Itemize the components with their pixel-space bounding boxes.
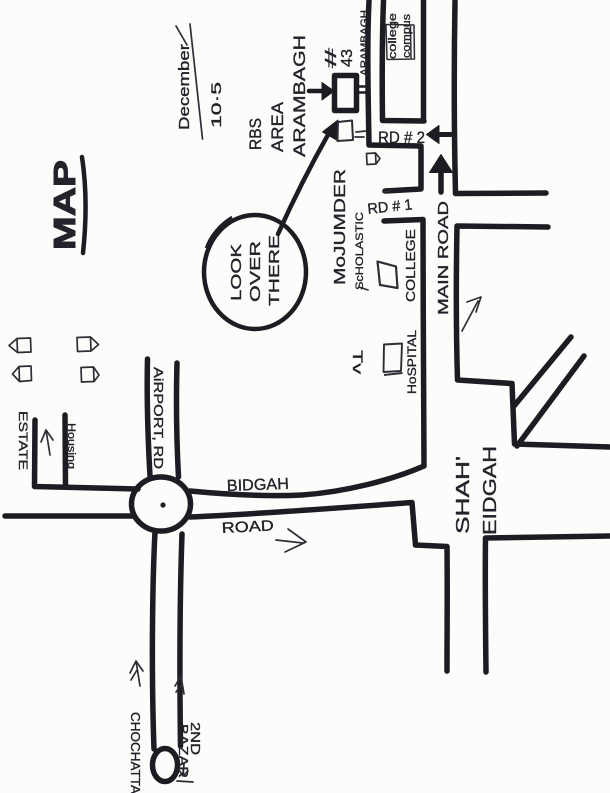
svg-text:Housing: Housing: [65, 423, 77, 469]
svg-text:ScHOLASTIC: ScHOLASTIC: [354, 212, 366, 290]
svg-text:ARAMBAGH: ARAMBAGH: [290, 35, 309, 157]
svg-text:RD # 2: RD # 2: [378, 128, 425, 147]
svg-text:HoSPITAL: HoSPITAL: [405, 330, 419, 394]
svg-text:RBS: RBS: [246, 118, 265, 150]
svg-text:AREA: AREA: [268, 101, 287, 152]
svg-text:LOOK: LOOK: [228, 244, 245, 301]
svg-text:MoJUMDER: MoJUMDER: [332, 169, 349, 285]
svg-text:BIDGAH: BIDGAH: [227, 476, 290, 495]
svg-text:ROAD: ROAD: [221, 517, 274, 537]
svg-text:RD # 1: RD # 1: [367, 196, 414, 218]
svg-text:compus: compus: [401, 13, 413, 58]
svg-text:MAIN ROAD: MAIN ROAD: [435, 201, 452, 315]
svg-text:#: #: [323, 48, 340, 68]
svg-text:COLLEGE: COLLEGE: [403, 229, 418, 302]
svg-text:BAZAR: BAZAR: [176, 724, 191, 778]
svg-text:December: December: [176, 44, 193, 130]
svg-text:OVER: OVER: [247, 241, 264, 302]
svg-text:EIDGAH: EIDGAH: [480, 446, 500, 535]
svg-text:ESTATE: ESTATE: [16, 411, 30, 470]
svg-text:college: college: [387, 13, 399, 59]
svg-text:SHAH': SHAH': [453, 456, 473, 534]
svg-text:10·5: 10·5: [208, 82, 224, 128]
svg-text:ARAMBAGH: ARAMBAGH: [359, 10, 371, 76]
svg-text:THERE: THERE: [266, 235, 283, 306]
svg-text:Tv: Tv: [350, 350, 366, 374]
svg-text:43: 43: [339, 49, 356, 67]
svg-text:AiRPORT, RD: AiRPORT, RD: [151, 367, 166, 469]
svg-text:MAP: MAP: [47, 160, 82, 250]
svg-text:CHOCHATTA: CHOCHATTA: [128, 712, 143, 793]
